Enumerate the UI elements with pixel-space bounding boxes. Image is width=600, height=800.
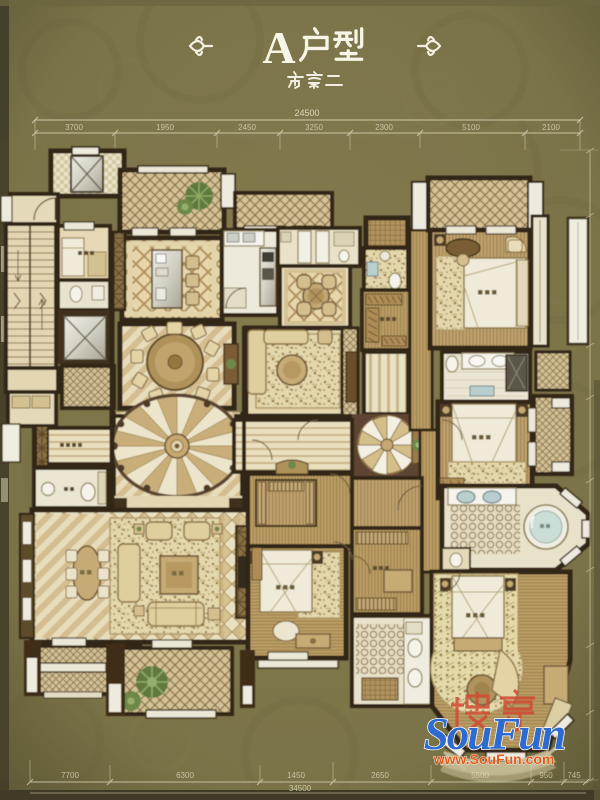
svg-text:2650: 2650: [371, 771, 389, 780]
svg-text:745: 745: [567, 771, 581, 780]
svg-text:5500: 5500: [471, 771, 489, 780]
svg-text:2450: 2450: [238, 123, 256, 132]
svg-text:www.SouFun.com: www.SouFun.com: [433, 751, 555, 767]
svg-text:24500: 24500: [294, 108, 319, 118]
svg-text:7700: 7700: [61, 771, 79, 780]
svg-text:3250: 3250: [305, 123, 323, 132]
svg-text:2300: 2300: [375, 123, 393, 132]
svg-text:950: 950: [539, 771, 553, 780]
svg-text:6300: 6300: [176, 771, 194, 780]
svg-text:1950: 1950: [156, 123, 174, 132]
svg-text:5100: 5100: [462, 123, 480, 132]
svg-text:3700: 3700: [65, 123, 83, 132]
svg-text:34500: 34500: [289, 784, 312, 793]
svg-text:1450: 1450: [287, 771, 305, 780]
svg-text:2100: 2100: [542, 123, 560, 132]
svg-text:A: A: [262, 22, 295, 73]
